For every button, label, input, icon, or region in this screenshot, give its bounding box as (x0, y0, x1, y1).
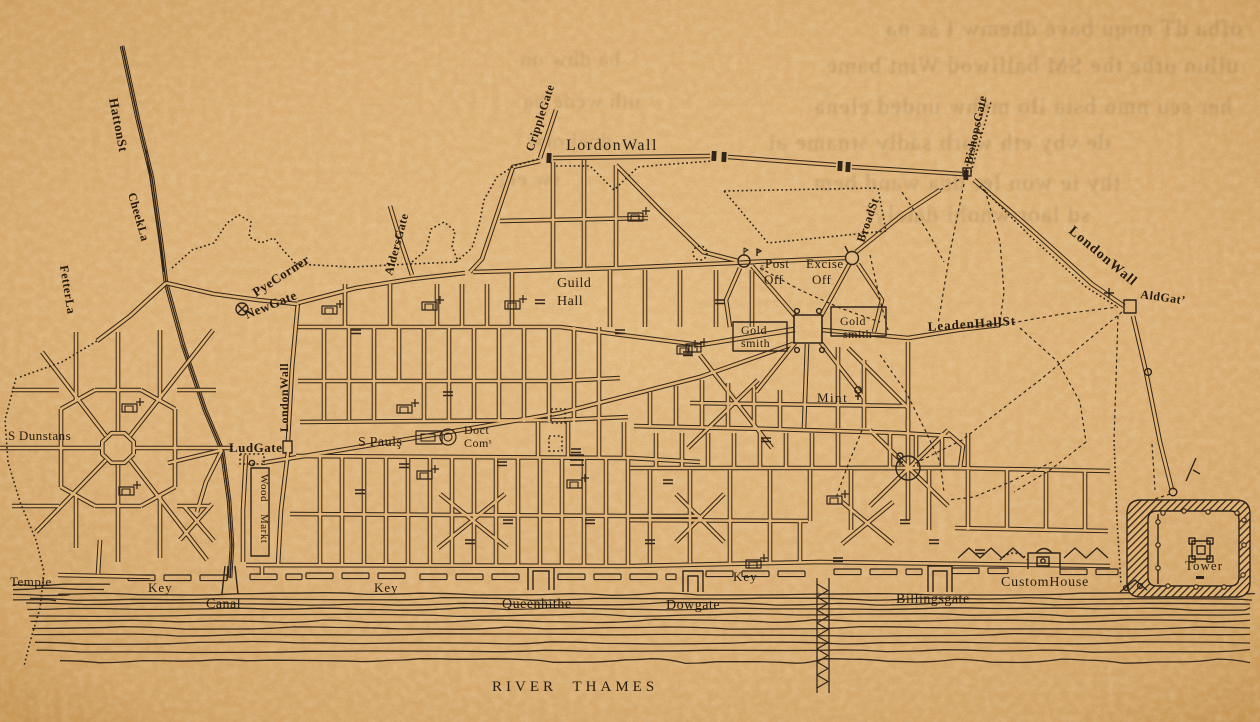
svg-text:Gold: Gold (741, 323, 767, 337)
svg-text:Queenhithe: Queenhithe (502, 597, 572, 612)
svg-text:Mint: Mint (817, 390, 848, 405)
svg-text:Off: Off (812, 272, 831, 287)
svg-text:Doct: Doct (464, 423, 489, 437)
svg-text:de vby eth worb sadly stname a: de vby eth worb sadly stname ai (767, 130, 1110, 155)
svg-text:Hall: Hall (557, 294, 583, 309)
svg-text:Comˢ: Comˢ (464, 436, 492, 450)
svg-text:Off: Off (764, 272, 783, 287)
svg-text:Wood: Wood (258, 474, 270, 502)
svg-text:Temple: Temple (10, 574, 52, 589)
svg-text:S Paulş: S Paulş (358, 435, 402, 450)
svg-text:CustomHouse: CustomHouse (1001, 575, 1089, 590)
svg-text:Key: Key (374, 580, 399, 595)
svg-text:₅Post: ₅Post (760, 256, 789, 271)
svg-text:S Dunstans: S Dunstans (8, 428, 71, 443)
svg-text:smith: smith (843, 327, 872, 341)
svg-text:Tower: Tower (1185, 558, 1223, 573)
svg-text:her seu nmo bsta ilo mehw unde: her seu nmo bsta ilo mehw unded elena (813, 94, 1232, 119)
svg-text:Key: Key (148, 580, 173, 595)
svg-text:ullun orbe the SM balliwod Win: ullun orbe the SM balliwod Wint bame (825, 53, 1238, 78)
svg-text:Key: Key (733, 569, 758, 584)
svg-text:Dowgate: Dowgate (666, 598, 720, 613)
svg-text:Canal: Canal (206, 597, 241, 612)
svg-text:LordonWall: LordonWall (566, 137, 658, 154)
svg-text:Gold: Gold (840, 314, 866, 328)
svg-text:Guild: Guild (557, 276, 591, 291)
svg-text:LudGate: LudGate (229, 440, 282, 455)
svg-text:ba dhw on: ba dhw on (519, 46, 620, 71)
svg-text:smith: smith (741, 336, 770, 350)
svg-text:LondonWall: LondonWall (277, 363, 291, 432)
svg-text:Billingsgate: Billingsgate (896, 592, 970, 607)
svg-text:Excise: Excise (806, 256, 844, 271)
svg-text:Markt: Markt (258, 514, 270, 543)
svg-text:ofba dT noqu bave dhemw I ss o: ofba dT noqu bave dhemw I ss oa (885, 16, 1242, 41)
svg-text:RIVER THAMES: RIVER THAMES (492, 679, 658, 695)
